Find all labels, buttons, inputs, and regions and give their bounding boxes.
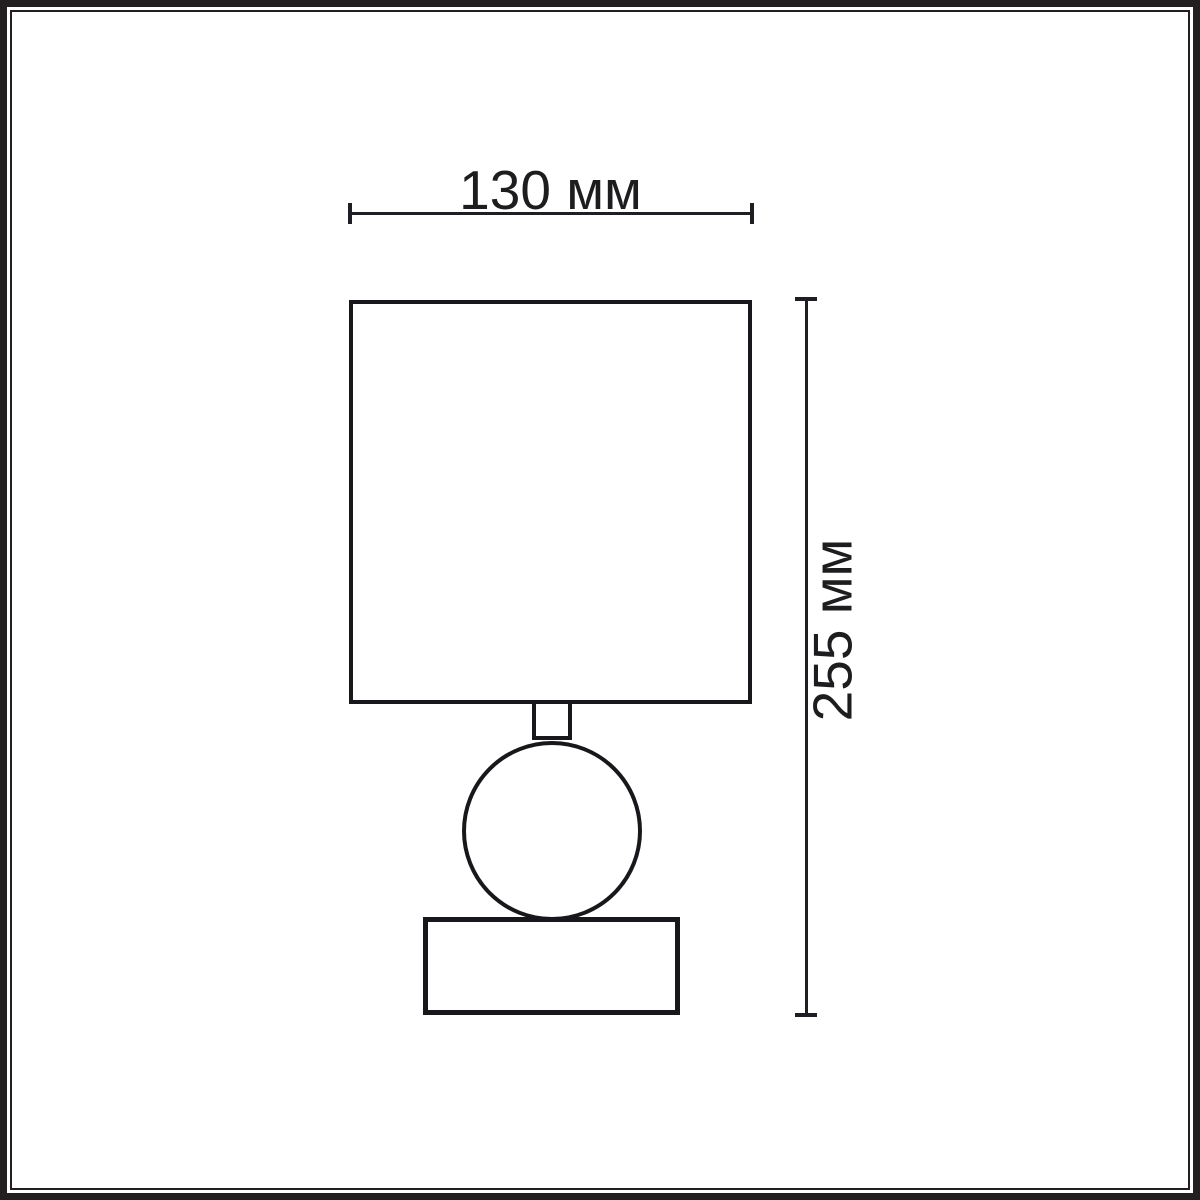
- lamp-dimension-diagram: 130 мм 255 мм: [0, 0, 1200, 1200]
- height-dimension-tick-top: [795, 297, 817, 301]
- lampshade: [349, 300, 752, 704]
- lamp-ball: [462, 741, 642, 921]
- height-dimension-label: 255 мм: [806, 539, 861, 722]
- lamp-neck: [532, 700, 572, 740]
- width-dimension-tick-left: [348, 203, 352, 224]
- width-dimension-tick-right: [750, 203, 754, 224]
- width-dimension-label: 130 мм: [349, 163, 752, 218]
- height-dimension-tick-bottom: [795, 1013, 817, 1017]
- lamp-base: [423, 917, 680, 1015]
- width-dimension-line: [349, 212, 752, 215]
